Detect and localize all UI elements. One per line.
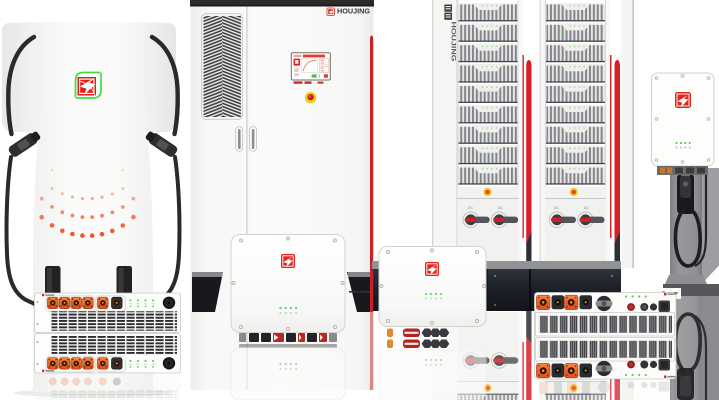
svg-text:HOUJING: HOUJING — [337, 9, 371, 16]
